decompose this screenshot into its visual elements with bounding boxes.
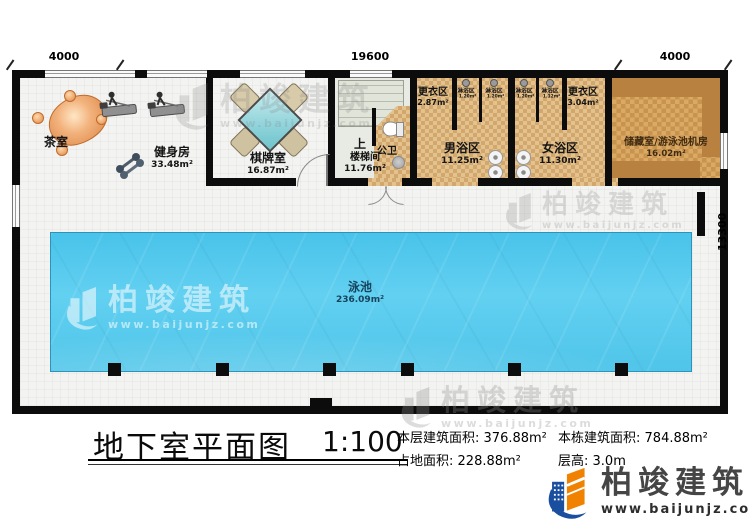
tea-stool <box>64 90 76 102</box>
column <box>401 363 414 376</box>
shower-stall-label: 淋浴区 1.20m² <box>453 88 479 102</box>
dimension-tick <box>116 59 124 70</box>
female-changing-label: 更衣区 <box>557 88 609 98</box>
wall <box>12 406 728 414</box>
stairwell-area: 11.76m² <box>338 165 392 174</box>
shower-head-icon <box>490 79 498 87</box>
window <box>45 70 135 78</box>
stat-floor-area: 本层建筑面积: 376.88m² <box>397 427 547 446</box>
male-changing-area: 2.87m² <box>407 99 459 107</box>
stat-value: 376.88m² <box>484 431 547 446</box>
toilet-door-threshold <box>368 178 402 186</box>
wall <box>12 70 20 414</box>
brand-text: 柏竣建筑 www.baijunjz.com <box>601 468 750 516</box>
window <box>240 70 305 78</box>
game-room-label: 棋牌室 <box>238 152 298 165</box>
wall <box>402 178 432 186</box>
toilet-tank <box>396 122 404 137</box>
stat-label: 本层建筑面积: <box>397 431 479 446</box>
female-changing-area: 3.04m² <box>557 99 609 107</box>
storage-label: 储藏室/游泳池机房 <box>606 138 726 148</box>
title-underline-thin <box>88 464 408 465</box>
pool-area: 236.09m² <box>300 296 420 305</box>
shower-head-icon <box>520 79 528 87</box>
column <box>310 398 332 408</box>
wall <box>328 178 368 186</box>
window <box>12 185 20 227</box>
pool-label: 泳池 <box>300 281 420 294</box>
dimension-top-left: 4000 <box>34 50 94 63</box>
plan-scale: 1:100 <box>322 425 403 458</box>
brand-logo: 柏竣建筑 www.baijunjz.com <box>540 463 750 521</box>
dimension-tick <box>614 59 622 70</box>
column <box>615 363 628 376</box>
tea-room-label: 茶室 <box>30 136 82 149</box>
wall <box>478 178 572 186</box>
shower-head-icon <box>462 79 470 87</box>
column <box>216 363 229 376</box>
shower-head-icon <box>546 79 554 87</box>
title-underline <box>88 459 408 461</box>
stat-value: 784.88m² <box>645 431 708 446</box>
wall-pier <box>697 192 705 236</box>
wall <box>206 70 213 186</box>
treadmill-icon <box>98 88 140 128</box>
door-leaf <box>326 154 328 186</box>
dimension-top-right: 4000 <box>645 50 705 63</box>
public-toilet-label: 公卫 <box>370 147 404 157</box>
column <box>323 363 336 376</box>
stat-total-area: 本栋建筑面积: 784.88m² <box>558 427 708 446</box>
treadmill-icon <box>146 88 188 128</box>
window <box>147 70 207 78</box>
shower-stall-label: 淋浴区 1.20m² <box>481 88 507 102</box>
brand-logo-icon <box>540 463 592 521</box>
shower-stall-label: 淋浴区 1.20m² <box>511 88 537 102</box>
dimension-top-center: 19600 <box>340 50 400 63</box>
male-bath-label: 男浴区 <box>432 142 492 155</box>
male-bath-area: 11.25m² <box>432 157 492 166</box>
stat-label: 占地面积: <box>397 454 453 469</box>
female-bath-area: 11.30m² <box>530 157 590 166</box>
column <box>508 363 521 376</box>
male-bath-door-threshold <box>432 178 478 186</box>
window <box>350 70 392 78</box>
shower-stall-label: 淋浴区 1.12m² <box>537 88 563 102</box>
stat-value: 228.88m² <box>458 454 521 469</box>
dimension-tick <box>724 59 732 70</box>
storage-area: 16.02m² <box>606 150 726 159</box>
dimension-right: 13300 <box>716 196 732 268</box>
male-changing-label: 更衣区 <box>407 88 459 98</box>
column <box>108 363 121 376</box>
tea-stool <box>32 112 44 124</box>
wall <box>206 178 296 186</box>
dimension-tick <box>6 59 14 70</box>
stat-label: 本栋建筑面积: <box>558 431 640 446</box>
game-room-area: 16.87m² <box>238 167 298 176</box>
floor-plan-canvas: 茶室 健身房 33.48m² 棋牌室 16.87m² 上 楼梯间 11.76m²… <box>0 0 750 531</box>
basin <box>516 150 531 165</box>
female-bath-label: 女浴区 <box>530 142 590 155</box>
storage-band-bottom <box>612 161 700 178</box>
gym-area: 33.48m² <box>140 161 204 170</box>
gym-label: 健身房 <box>140 146 204 159</box>
stat-land-area: 占地面积: 228.88m² <box>397 450 521 469</box>
wall <box>618 178 720 186</box>
